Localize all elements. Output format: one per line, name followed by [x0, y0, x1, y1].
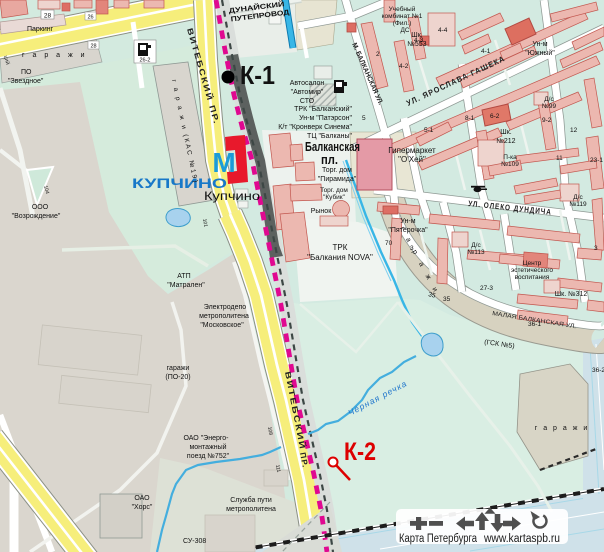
svg-text:г а р а ж и: г а р а ж и [535, 425, 590, 432]
svg-text:Торг. дом: Торг. дом [320, 187, 348, 194]
svg-text:4-1: 4-1 [481, 48, 491, 55]
svg-text:4-3: 4-3 [414, 37, 424, 44]
svg-text:эстетического: эстетического [511, 267, 553, 274]
svg-text:5-1: 5-1 [424, 127, 434, 134]
svg-text:метрополитена: метрополитена [226, 506, 276, 513]
svg-text:"Южный": "Южный" [525, 49, 555, 57]
svg-text:Д/с: Д/с [544, 96, 554, 103]
svg-text:Ун-м: Ун-м [400, 218, 415, 225]
svg-text:Рынок: Рынок [311, 208, 332, 215]
svg-text:8-1: 8-1 [465, 115, 475, 122]
svg-text:Центр: Центр [523, 260, 542, 267]
svg-text:Ун-м: Ун-м [532, 41, 547, 48]
svg-text:Учебный: Учебный [389, 5, 416, 13]
svg-text:4-2: 4-2 [399, 63, 409, 70]
svg-text:26-2: 26-2 [139, 58, 150, 64]
svg-text:26: 26 [87, 15, 93, 21]
svg-text:комбинат №1: комбинат №1 [382, 12, 423, 20]
svg-text:Д/с: Д/с [471, 242, 481, 249]
svg-text:Д/с: Д/с [573, 194, 583, 201]
svg-text:11: 11 [556, 155, 563, 162]
svg-text:"Кубик": "Кубик" [323, 193, 346, 201]
svg-text:М: М [212, 147, 235, 178]
svg-text:70: 70 [385, 240, 393, 247]
svg-text:№119: №119 [569, 201, 587, 208]
svg-text:Карта Петербурга: Карта Петербурга [399, 533, 477, 545]
svg-text:Автосалон: Автосалон [290, 80, 325, 87]
svg-text:3: 3 [410, 245, 414, 252]
svg-text:Служба пути: Служба пути [230, 496, 272, 504]
svg-text:Торг. дом: Торг. дом [322, 167, 352, 174]
svg-text:воспитания: воспитания [515, 274, 550, 281]
svg-text:36-2: 36-2 [592, 367, 604, 374]
svg-text:Гипермаркет: Гипермаркет [388, 146, 436, 155]
svg-text:К/т "Кронверк Синема": К/т "Кронверк Синема" [278, 124, 352, 131]
svg-text:Ун-м "Патэрсон": Ун-м "Патэрсон" [299, 115, 352, 122]
svg-text:Паркинг: Паркинг [27, 26, 54, 33]
svg-text:Электродепо: Электродепо [204, 304, 247, 311]
svg-text:"Балкания NOVA": "Балкания NOVA" [307, 253, 373, 262]
svg-text:35: 35 [443, 296, 451, 303]
svg-text:монтажный: монтажный [189, 443, 226, 451]
svg-text:4-4: 4-4 [438, 27, 448, 34]
svg-text:"Возрождение": "Возрождение" [12, 213, 61, 220]
svg-text:9-2: 9-2 [542, 117, 552, 124]
svg-text:2: 2 [376, 51, 380, 58]
svg-text:6-2: 6-2 [490, 113, 500, 120]
svg-text:28: 28 [90, 44, 96, 50]
svg-text:"Автомир": "Автомир" [291, 89, 324, 96]
svg-text:"Хорс": "Хорс" [132, 504, 153, 511]
svg-text:поезд №752": поезд №752" [187, 453, 230, 460]
svg-text:36-1: 36-1 [528, 321, 541, 328]
svg-text:гаражи: гаражи [167, 365, 190, 372]
svg-text:ТРК: ТРК [333, 243, 348, 252]
svg-text:28: 28 [44, 13, 52, 20]
svg-text:"Московское": "Московское" [200, 322, 244, 329]
svg-text:№99: №99 [542, 103, 557, 110]
svg-text:3: 3 [594, 245, 598, 252]
svg-text:г а р а ж и: г а р а ж и [22, 52, 88, 59]
svg-text:(ПО-20): (ПО-20) [165, 374, 190, 381]
svg-text:23-1: 23-1 [590, 157, 603, 164]
svg-text:27-3: 27-3 [480, 285, 493, 292]
svg-text:"Матрален": "Матрален" [167, 282, 205, 289]
svg-text:"Звездное": "Звездное" [8, 78, 44, 85]
svg-text:ДС: ДС [400, 27, 409, 34]
svg-text:5: 5 [362, 115, 366, 122]
svg-text:ПО: ПО [21, 69, 32, 76]
svg-text:ОАО "Энерго-: ОАО "Энерго- [184, 435, 230, 442]
svg-text:СТО: СТО [300, 98, 315, 105]
svg-text:ОАО: ОАО [134, 495, 150, 502]
svg-text:АТП: АТП [177, 273, 190, 280]
svg-text:Купчино: Купчино [204, 189, 260, 203]
svg-text:"О'Хей": "О'Хей" [398, 155, 426, 164]
svg-text:www.kartaspb.ru: www.kartaspb.ru [483, 533, 560, 545]
svg-text:№109: №109 [501, 161, 519, 168]
svg-text:Шк.: Шк. [500, 129, 511, 136]
svg-text:(Фил.): (Фил.) [393, 20, 412, 27]
svg-text:Шк. №312: Шк. №312 [555, 291, 588, 298]
svg-text:П-ка: П-ка [503, 154, 517, 161]
svg-text:№212: №212 [496, 138, 515, 145]
svg-text:12: 12 [570, 127, 578, 134]
svg-text:пл.: пл. [321, 152, 338, 167]
svg-text:метрополитена: метрополитена [199, 313, 249, 320]
svg-text:"Пирамида": "Пирамида" [318, 176, 357, 183]
svg-text:К-1: К-1 [240, 60, 275, 90]
svg-text:ТРК "Балканский": ТРК "Балканский" [294, 105, 352, 113]
svg-text:ООО: ООО [32, 204, 49, 211]
svg-text:№113: №113 [467, 249, 485, 256]
svg-text:СУ-308: СУ-308 [183, 538, 206, 545]
svg-text:К-2: К-2 [344, 438, 376, 466]
